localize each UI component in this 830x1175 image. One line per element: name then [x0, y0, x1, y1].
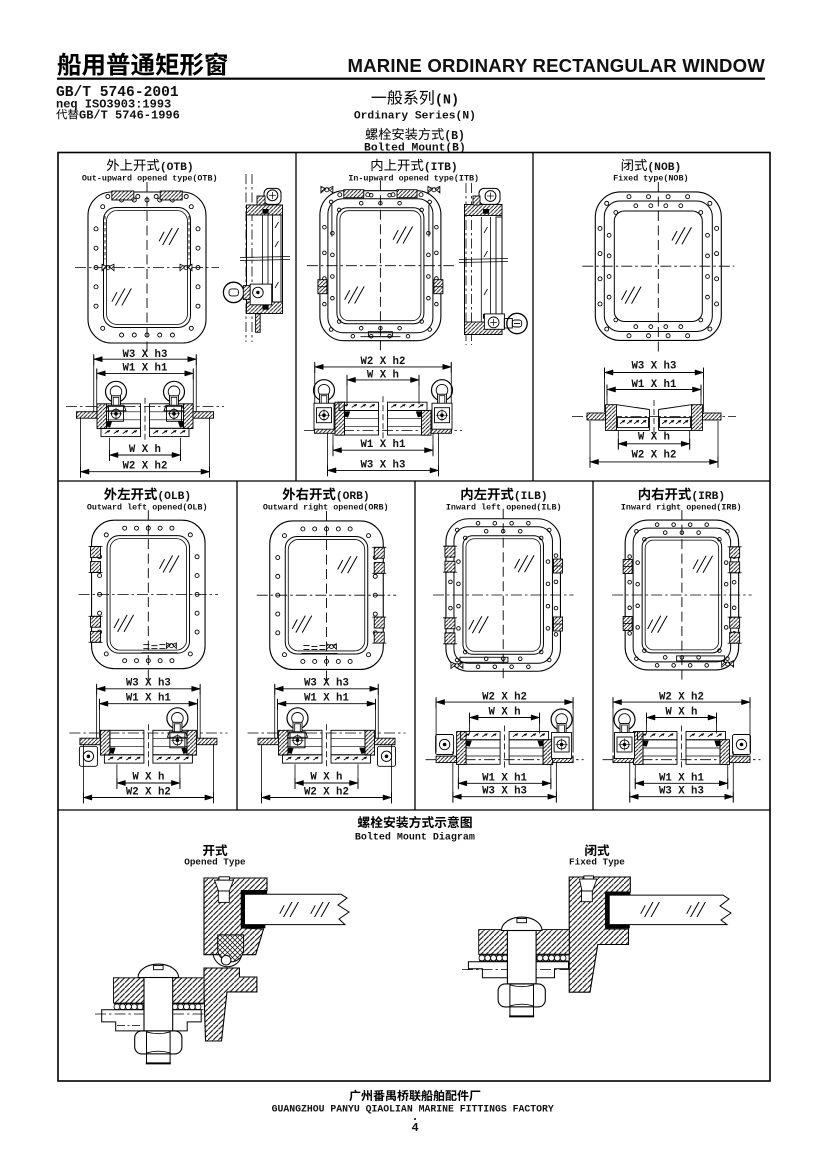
svg-text:W2 X h2: W2 X h2	[360, 356, 405, 368]
svg-text:Out-upward opened type(OTB): Out-upward opened type(OTB)	[82, 174, 218, 184]
svg-text:W X h: W X h	[310, 772, 342, 784]
svg-text:Outward left opened(OLB): Outward left opened(OLB)	[87, 503, 208, 513]
svg-text:MARINE ORDINARY RECTANGULAR WI: MARINE ORDINARY RECTANGULAR WINDOW	[347, 55, 765, 76]
svg-text:W1 X h1: W1 X h1	[304, 693, 349, 705]
svg-text:Inward right opened(IRB): Inward right opened(IRB)	[621, 503, 742, 513]
svg-text:W X h: W X h	[132, 772, 164, 784]
svg-text:Ordinary Series(N): Ordinary Series(N)	[354, 111, 476, 123]
svg-text:W2 X h2: W2 X h2	[122, 461, 167, 473]
svg-text:In-upward opened type(ITB): In-upward opened type(ITB)	[348, 174, 479, 184]
svg-text:W2 X h2: W2 X h2	[659, 692, 704, 704]
svg-text:W3 X h3: W3 X h3	[122, 349, 167, 361]
svg-text:W X h: W X h	[638, 432, 670, 444]
svg-text:W1 X h1: W1 X h1	[482, 773, 527, 785]
svg-text:Fixed type(NOB): Fixed type(NOB)	[613, 174, 688, 184]
svg-text:(OTB): (OTB)	[160, 162, 194, 174]
svg-text:W2 X h2: W2 X h2	[631, 450, 676, 462]
svg-text:W1 X h1: W1 X h1	[659, 773, 704, 785]
svg-text:4: 4	[412, 1121, 419, 1135]
svg-text:(N): (N)	[435, 94, 459, 109]
svg-text:W X h: W X h	[665, 707, 697, 719]
svg-text:W3 X h3: W3 X h3	[360, 460, 405, 472]
svg-text:W3 X h3: W3 X h3	[304, 678, 349, 690]
svg-text:W3 X h3: W3 X h3	[631, 360, 676, 372]
svg-text:W2 X h2: W2 X h2	[126, 787, 171, 799]
svg-text:Opened Type: Opened Type	[184, 857, 246, 868]
svg-text:W3 X h3: W3 X h3	[126, 678, 171, 690]
svg-text:W X h: W X h	[367, 370, 399, 382]
svg-text:GB/T 5746-1996: GB/T 5746-1996	[79, 109, 180, 123]
svg-text:GUANGZHOU PANYU QIAOLIAN MARIN: GUANGZHOU PANYU QIAOLIAN MARINE FITTINGS…	[272, 1103, 554, 1114]
svg-text:(IRB): (IRB)	[691, 491, 725, 503]
svg-text:W3 X h3: W3 X h3	[482, 786, 527, 798]
svg-text:W3 X h3: W3 X h3	[659, 786, 704, 798]
svg-text:W1 X h1: W1 X h1	[122, 363, 167, 375]
svg-text:(ORB): (ORB)	[336, 491, 370, 503]
svg-text:W1 X h1: W1 X h1	[126, 693, 171, 705]
svg-text:Outward right opened(ORB): Outward right opened(ORB)	[263, 503, 389, 513]
svg-text:(NOB): (NOB)	[647, 162, 681, 174]
svg-text:(ILB): (ILB)	[514, 491, 548, 503]
svg-text:W2 X h2: W2 X h2	[482, 692, 527, 704]
svg-text:W X h: W X h	[129, 444, 161, 456]
svg-text:W2 X h2: W2 X h2	[304, 787, 349, 799]
svg-text:Fixed Type: Fixed Type	[569, 857, 625, 868]
svg-text:(B): (B)	[444, 130, 465, 143]
svg-text:W1 X h1: W1 X h1	[631, 379, 676, 391]
svg-text:(OLB): (OLB)	[157, 491, 191, 503]
svg-text:Inward left opened(ILB): Inward left opened(ILB)	[446, 503, 562, 513]
svg-text:Bolted Mount Diagram: Bolted Mount Diagram	[355, 832, 475, 844]
svg-text:(ITB): (ITB)	[424, 162, 458, 174]
svg-text:W1 X h1: W1 X h1	[360, 439, 405, 451]
svg-text:W X h: W X h	[489, 707, 521, 719]
